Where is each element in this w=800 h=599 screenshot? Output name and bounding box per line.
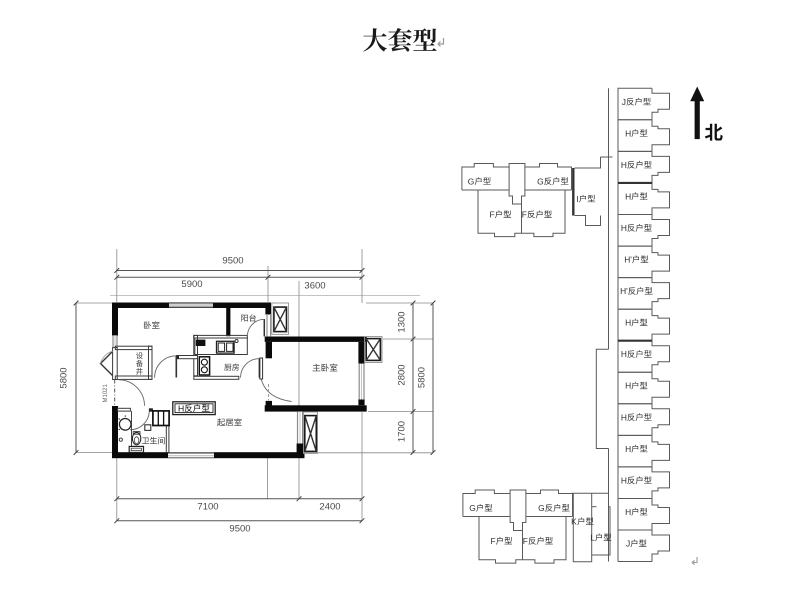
svg-text:5800: 5800 <box>59 367 70 388</box>
svg-text:H: H <box>625 381 631 391</box>
svg-text:G: G <box>468 176 475 186</box>
svg-text:2400: 2400 <box>319 502 340 513</box>
svg-text:H: H <box>621 223 627 233</box>
svg-text:F: F <box>522 210 527 220</box>
svg-text:F: F <box>523 536 528 546</box>
svg-text:2800: 2800 <box>397 364 408 385</box>
svg-text:H: H <box>625 191 631 201</box>
svg-text:H: H <box>625 128 631 138</box>
svg-text:I: I <box>576 194 578 204</box>
svg-text:G: G <box>469 503 476 513</box>
svg-text:1300: 1300 <box>397 311 408 332</box>
svg-text:9500: 9500 <box>229 524 250 535</box>
svg-text:3600: 3600 <box>304 281 325 292</box>
svg-text:K: K <box>571 517 577 527</box>
svg-text:F: F <box>490 210 495 220</box>
svg-text:1700: 1700 <box>397 421 408 442</box>
svg-text:J: J <box>626 539 630 549</box>
svg-text:H: H <box>621 475 627 485</box>
svg-text:G: G <box>537 176 544 186</box>
svg-text:M1021: M1021 <box>103 383 109 402</box>
svg-text:F: F <box>491 536 496 546</box>
svg-text:J: J <box>622 97 626 107</box>
svg-text:H: H <box>621 349 627 359</box>
svg-text:H: H <box>625 318 631 328</box>
svg-text:L: L <box>590 533 595 543</box>
svg-text:5800: 5800 <box>417 367 428 388</box>
svg-text:H: H <box>178 403 184 413</box>
svg-text:9500: 9500 <box>222 256 243 267</box>
svg-text:H: H <box>625 507 631 517</box>
svg-text:7100: 7100 <box>197 502 218 513</box>
svg-text:G: G <box>538 503 545 513</box>
svg-text:H: H <box>625 444 631 454</box>
svg-text:5900: 5900 <box>181 279 202 290</box>
svg-text:H: H <box>621 412 627 422</box>
svg-text:H: H <box>621 160 627 170</box>
